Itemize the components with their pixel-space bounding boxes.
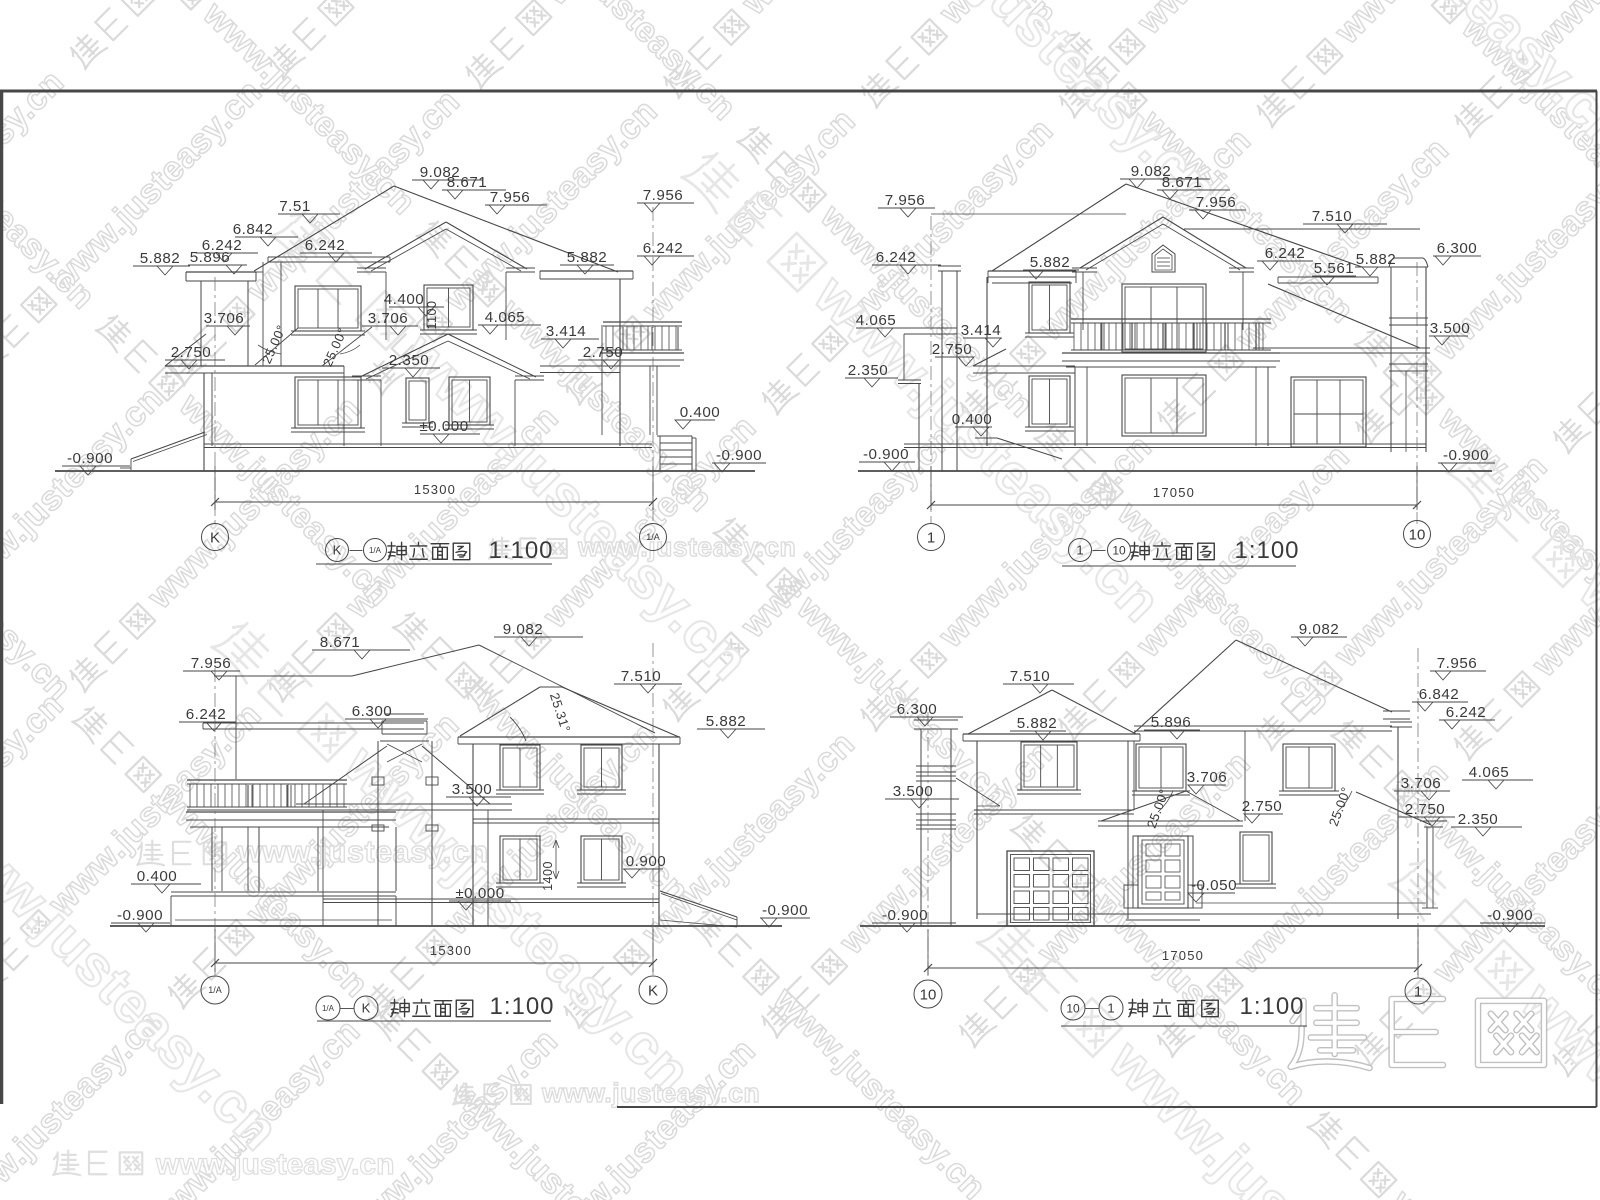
- svg-text:7.51: 7.51: [279, 198, 311, 215]
- svg-text:-0.900: -0.900: [863, 446, 909, 463]
- svg-text:5.882: 5.882: [1356, 251, 1397, 268]
- svg-text:K: K: [648, 982, 658, 999]
- svg-text:1: 1: [1107, 1001, 1114, 1016]
- svg-text:1/A: 1/A: [208, 985, 222, 995]
- svg-text:-0.900: -0.900: [882, 907, 928, 924]
- svg-text:±0.000: ±0.000: [455, 885, 504, 902]
- svg-text:K: K: [362, 1001, 371, 1016]
- svg-text:±0.000: ±0.000: [419, 418, 468, 435]
- svg-text:1:100: 1:100: [1234, 537, 1299, 564]
- svg-text:—: —: [1093, 542, 1106, 557]
- svg-text:1: 1: [927, 529, 935, 546]
- svg-text:5.896: 5.896: [190, 249, 231, 266]
- svg-text:3.414: 3.414: [546, 323, 587, 340]
- svg-text:2.350: 2.350: [848, 362, 889, 379]
- svg-text:3.500: 3.500: [893, 783, 934, 800]
- svg-text:8.671: 8.671: [447, 174, 488, 191]
- svg-text:-0.900: -0.900: [67, 450, 113, 467]
- svg-text:5.561: 5.561: [1314, 260, 1355, 277]
- svg-text:5.882: 5.882: [1030, 254, 1071, 271]
- svg-text:1100: 1100: [425, 301, 439, 330]
- svg-text:www.justeasy.cn: www.justeasy.cn: [541, 1078, 760, 1108]
- svg-text:7.510: 7.510: [1312, 208, 1353, 225]
- svg-text:15300: 15300: [414, 482, 456, 497]
- svg-text:4.400: 4.400: [384, 291, 425, 308]
- svg-text:2.750: 2.750: [1242, 798, 1283, 815]
- svg-text:6.242: 6.242: [186, 706, 227, 723]
- svg-text:2.350: 2.350: [1458, 811, 1499, 828]
- svg-text:www.justeasy.cn: www.justeasy.cn: [237, 835, 489, 869]
- svg-text:6.242: 6.242: [643, 240, 684, 257]
- svg-text:10: 10: [920, 986, 937, 1003]
- svg-text:5.882: 5.882: [567, 249, 608, 266]
- svg-text:2.750: 2.750: [1405, 801, 1446, 818]
- svg-text:4.065: 4.065: [485, 309, 526, 326]
- svg-text:7.510: 7.510: [1010, 668, 1051, 685]
- svg-text:6.842: 6.842: [1419, 686, 1460, 703]
- svg-text:-0.900: -0.900: [1487, 907, 1533, 924]
- svg-text:2.350: 2.350: [389, 352, 430, 369]
- svg-text:3.706: 3.706: [1187, 769, 1228, 786]
- svg-text:1:100: 1:100: [488, 537, 553, 564]
- svg-text:0.400: 0.400: [680, 404, 721, 421]
- svg-text:1/A: 1/A: [322, 1004, 335, 1013]
- svg-text:9.082: 9.082: [503, 621, 544, 638]
- svg-text:6.242: 6.242: [1265, 245, 1306, 262]
- svg-text:6.300: 6.300: [352, 703, 393, 720]
- svg-text:6.300: 6.300: [897, 701, 938, 718]
- svg-text:-0.900: -0.900: [117, 907, 163, 924]
- svg-text:4.065: 4.065: [856, 312, 897, 329]
- svg-text:5.896: 5.896: [1151, 714, 1192, 731]
- svg-text:0.400: 0.400: [137, 868, 178, 885]
- svg-text:10: 10: [1112, 543, 1126, 557]
- svg-text:6.300: 6.300: [1437, 240, 1478, 257]
- svg-text:9.082: 9.082: [1299, 621, 1340, 638]
- svg-text:-0.050: -0.050: [1191, 877, 1237, 894]
- svg-text:—: —: [341, 1000, 354, 1015]
- svg-text:3.500: 3.500: [1430, 320, 1471, 337]
- svg-text:1:100: 1:100: [1239, 993, 1304, 1020]
- svg-text:7.956: 7.956: [191, 655, 232, 672]
- svg-text:www.justeasy.cn: www.justeasy.cn: [155, 1148, 394, 1181]
- svg-text:0.400: 0.400: [952, 411, 993, 428]
- svg-text:4.065: 4.065: [1469, 764, 1510, 781]
- svg-text:3.706: 3.706: [1401, 775, 1442, 792]
- svg-text:7.956: 7.956: [490, 189, 531, 206]
- svg-text:5.882: 5.882: [140, 250, 181, 267]
- svg-text:0.900: 0.900: [626, 853, 667, 870]
- svg-text:1/A: 1/A: [646, 532, 660, 542]
- svg-text:2.750: 2.750: [171, 344, 212, 361]
- svg-text:1:100: 1:100: [489, 993, 554, 1020]
- svg-text:5.882: 5.882: [706, 713, 747, 730]
- svg-text:1: 1: [1414, 983, 1422, 1000]
- svg-text:2.750: 2.750: [583, 344, 624, 361]
- svg-text:2.750: 2.750: [932, 341, 973, 358]
- svg-text:-0.900: -0.900: [1443, 447, 1489, 464]
- svg-text:3.414: 3.414: [961, 322, 1002, 339]
- svg-text:6.842: 6.842: [233, 221, 274, 238]
- svg-text:7.956: 7.956: [1196, 194, 1237, 211]
- svg-text:8.671: 8.671: [1162, 174, 1203, 191]
- svg-text:10: 10: [1409, 526, 1426, 543]
- svg-text:-0.900: -0.900: [762, 902, 808, 919]
- svg-text:1400: 1400: [541, 861, 555, 891]
- svg-text:15300: 15300: [430, 943, 472, 958]
- svg-text:1/A: 1/A: [369, 546, 382, 555]
- svg-text:www.justeasy.cn: www.justeasy.cn: [577, 532, 796, 562]
- svg-text:K: K: [210, 529, 220, 546]
- svg-text:17050: 17050: [1162, 948, 1204, 963]
- svg-text:—: —: [1086, 1000, 1099, 1015]
- svg-text:7.956: 7.956: [643, 187, 684, 204]
- svg-text:17050: 17050: [1153, 485, 1195, 500]
- svg-text:7.956: 7.956: [1437, 655, 1478, 672]
- svg-text:-0.900: -0.900: [716, 447, 762, 464]
- svg-text:5.882: 5.882: [1017, 715, 1058, 732]
- svg-text:8.671: 8.671: [320, 634, 361, 651]
- svg-text:1: 1: [1076, 543, 1083, 558]
- svg-text:6.242: 6.242: [1446, 704, 1487, 721]
- svg-text:7.510: 7.510: [621, 668, 662, 685]
- svg-text:—: —: [350, 542, 363, 557]
- svg-text:6.242: 6.242: [876, 249, 917, 266]
- svg-text:3.706: 3.706: [204, 310, 245, 327]
- svg-text:7.956: 7.956: [885, 192, 926, 209]
- svg-text:3.500: 3.500: [452, 781, 493, 798]
- svg-text:K: K: [333, 543, 342, 558]
- svg-text:10: 10: [1066, 1001, 1080, 1015]
- svg-text:3.706: 3.706: [368, 310, 409, 327]
- svg-text:6.242: 6.242: [305, 237, 346, 254]
